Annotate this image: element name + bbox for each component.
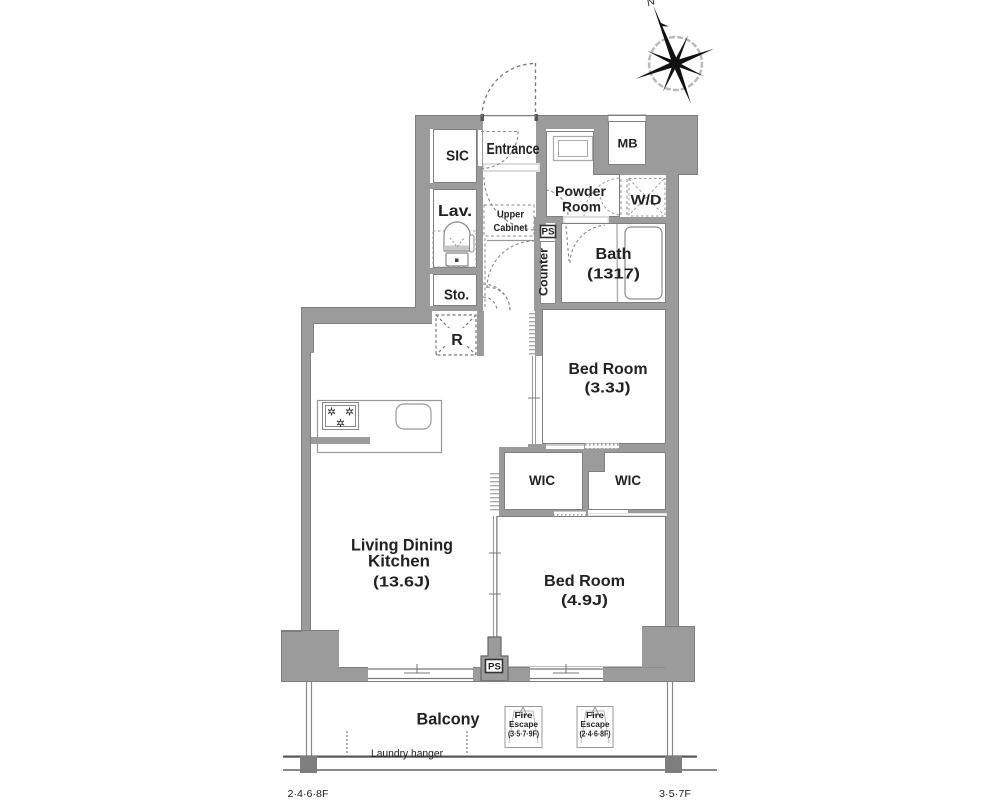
svg-text:Kitchen: Kitchen xyxy=(368,552,430,571)
svg-text:Cabinet: Cabinet xyxy=(494,223,529,234)
svg-text:Bath: Bath xyxy=(596,246,632,263)
svg-text:WIC: WIC xyxy=(529,472,555,488)
svg-text:Laundry hanger: Laundry hanger xyxy=(371,748,443,760)
svg-text:Balcony: Balcony xyxy=(417,710,481,729)
svg-text:W/D: W/D xyxy=(631,193,662,208)
svg-text:(13.6J): (13.6J) xyxy=(373,574,430,591)
svg-text:Entrance: Entrance xyxy=(487,141,540,158)
svg-text:(3·5·7·9F): (3·5·7·9F) xyxy=(508,730,539,739)
svg-text:SIC: SIC xyxy=(446,149,470,165)
svg-text:Escape: Escape xyxy=(581,719,610,729)
svg-text:Counter: Counter xyxy=(537,248,551,296)
svg-text:PS: PS xyxy=(542,227,555,237)
svg-text:R: R xyxy=(451,332,463,349)
svg-text:Room: Room xyxy=(562,199,601,215)
svg-text:PS: PS xyxy=(488,662,501,672)
svg-text:Upper: Upper xyxy=(497,210,524,221)
svg-text:(4.9J): (4.9J) xyxy=(561,593,608,609)
svg-text:3·5·7F: 3·5·7F xyxy=(659,788,691,800)
svg-text:2·4·6·8F: 2·4·6·8F xyxy=(288,788,329,800)
svg-text:WIC: WIC xyxy=(615,472,641,488)
svg-text:Bed Room: Bed Room xyxy=(569,361,648,378)
svg-text:Powder: Powder xyxy=(555,183,607,199)
svg-text:Bed Room: Bed Room xyxy=(544,573,625,590)
svg-text:(1317): (1317) xyxy=(587,266,640,283)
svg-text:Lav.: Lav. xyxy=(438,203,472,220)
svg-text:(2·4·6·8F): (2·4·6·8F) xyxy=(580,730,611,739)
svg-text:Sto.: Sto. xyxy=(444,288,469,304)
svg-text:MB: MB xyxy=(618,137,638,151)
svg-text:(3.3J): (3.3J) xyxy=(585,381,631,397)
svg-text:Escape: Escape xyxy=(509,719,538,729)
